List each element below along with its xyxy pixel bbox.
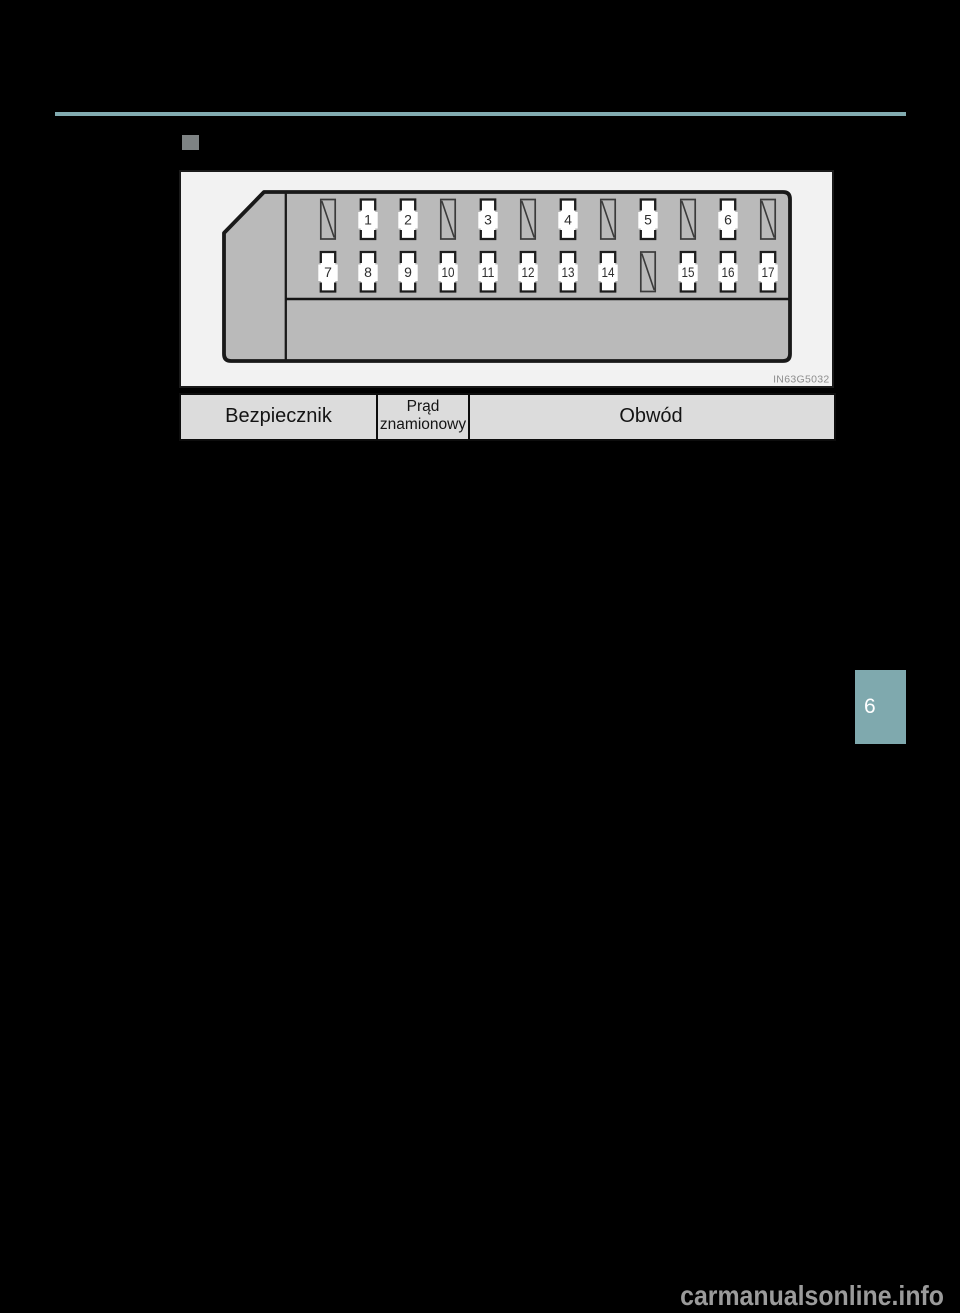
svg-text:12: 12 (522, 264, 535, 280)
svg-text:1: 1 (364, 211, 372, 227)
svg-text:3: 3 (484, 211, 492, 227)
svg-text:13: 13 (562, 264, 575, 280)
svg-text:16: 16 (722, 264, 735, 280)
svg-text:4: 4 (564, 211, 572, 227)
svg-text:11: 11 (482, 264, 495, 280)
svg-text:14: 14 (602, 264, 615, 280)
svg-text:9: 9 (404, 264, 412, 280)
svg-text:IN63G5032: IN63G5032 (773, 373, 829, 385)
svg-text:7: 7 (324, 264, 332, 280)
svg-text:10: 10 (442, 264, 455, 280)
svg-text:5: 5 (644, 211, 652, 227)
svg-text:17: 17 (762, 264, 775, 280)
svg-text:15: 15 (682, 264, 695, 280)
svg-text:6: 6 (724, 211, 732, 227)
svg-text:8: 8 (364, 264, 372, 280)
svg-text:2: 2 (404, 211, 412, 227)
